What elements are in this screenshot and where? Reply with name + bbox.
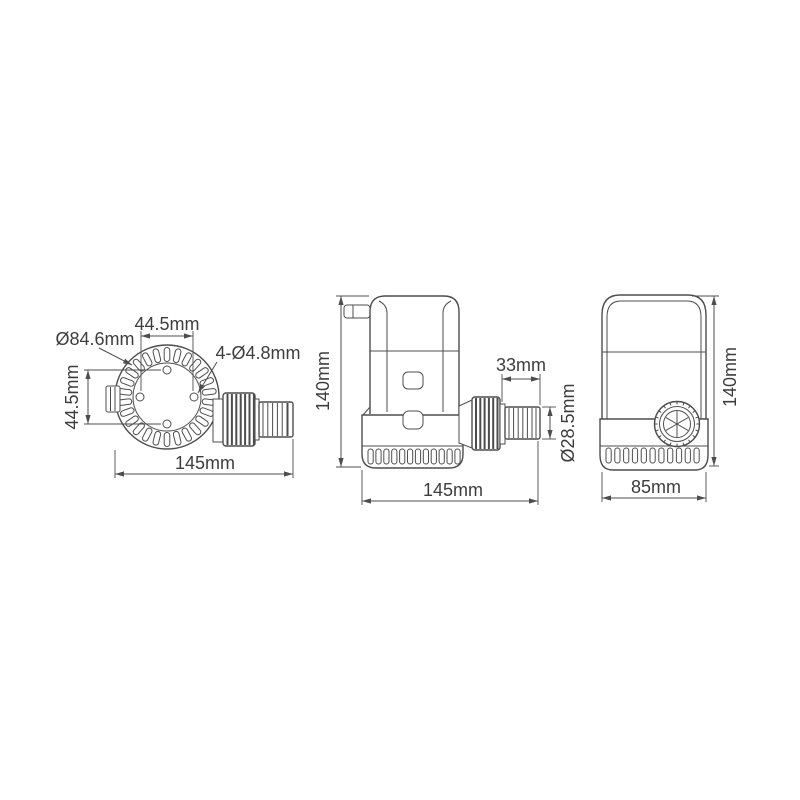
- technical-drawing: 44.5mm Ø84.6mm 4-Ø4.8mm 44.5mm 145mm: [0, 0, 800, 800]
- body-button-upper: [403, 372, 423, 389]
- dim-label-side-height: 140mm: [720, 347, 740, 407]
- outlet-neck-front: [459, 400, 472, 448]
- dim-label-barb-length: 33mm: [496, 355, 546, 375]
- dim-label-front-length: 145mm: [423, 480, 483, 500]
- top-nut-knurl: [228, 394, 254, 445]
- top-wire-nub: [106, 386, 120, 412]
- front-outlet-assembly: [459, 397, 540, 450]
- dim-label-top-length: 145mm: [175, 453, 235, 473]
- top-view-group: 44.5mm Ø84.6mm 4-Ø4.8mm 44.5mm 145mm: [55, 314, 300, 478]
- leader-body-diameter: [99, 348, 132, 365]
- mounting-hole-bottom: [163, 420, 171, 428]
- side-view-group: 140mm 85mm: [600, 295, 740, 502]
- side-strainer-slots: [606, 448, 699, 463]
- mounting-hole-right: [190, 393, 198, 401]
- dim-label-front-height: 140mm: [313, 351, 333, 411]
- dim-label-outlet-diameter: Ø28.5mm: [558, 383, 578, 462]
- outlet-collar-front: [500, 404, 505, 444]
- front-view-group: 140mm 33mm Ø28.5mm 145mm: [313, 296, 578, 505]
- dim-label-hole-spacing-v: 44.5mm: [62, 364, 82, 429]
- dim-label-mounting-holes: 4-Ø4.8mm: [215, 343, 300, 363]
- body-button-lower: [403, 411, 423, 429]
- pump-body-side: [602, 295, 706, 420]
- drawing-canvas: 44.5mm Ø84.6mm 4-Ø4.8mm 44.5mm 145mm: [0, 0, 800, 800]
- dim-label-side-width: 85mm: [631, 477, 681, 497]
- mounting-hole-top: [163, 366, 171, 374]
- front-wire-nub: [344, 305, 370, 318]
- dim-label-body-diameter: Ø84.6mm: [55, 329, 134, 349]
- outlet-port-side: [655, 402, 700, 447]
- dim-label-hole-spacing-h: 44.5mm: [134, 314, 199, 334]
- mounting-hole-left: [136, 393, 144, 401]
- pump-body-front: [370, 296, 459, 414]
- top-outlet-assembly: [213, 393, 293, 446]
